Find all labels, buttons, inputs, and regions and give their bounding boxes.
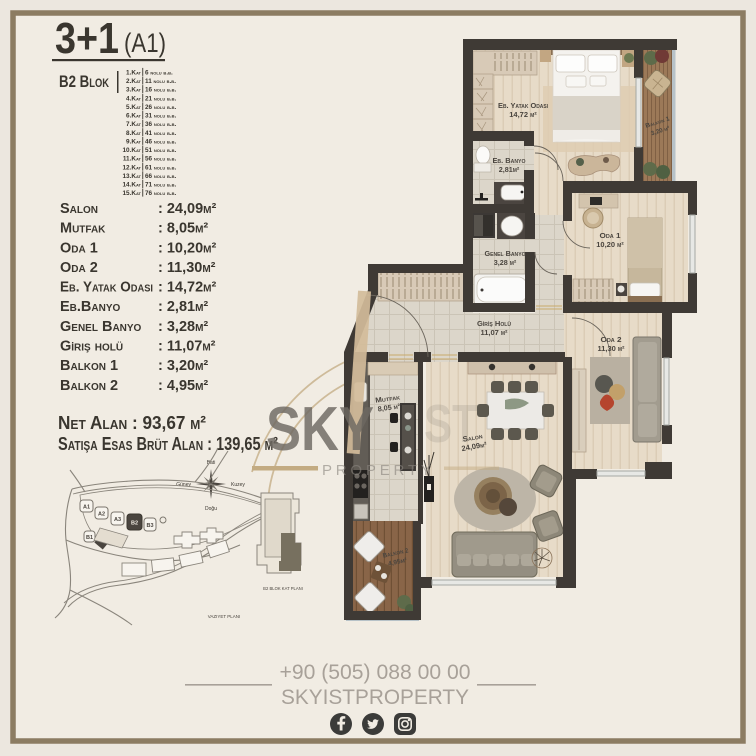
svg-text:B1: B1 bbox=[86, 535, 93, 541]
svg-text:41 nolu b.b.: 41 nolu b.b. bbox=[145, 130, 177, 137]
svg-text:B3: B3 bbox=[146, 523, 153, 529]
svg-text:Kuzey: Kuzey bbox=[231, 482, 245, 488]
svg-text:66 nolu b.b.: 66 nolu b.b. bbox=[145, 173, 177, 180]
svg-text:VAZIYET PLANI: VAZIYET PLANI bbox=[208, 614, 241, 619]
svg-text:B2: B2 bbox=[131, 521, 138, 527]
svg-text:10,20 m²: 10,20 m² bbox=[596, 240, 624, 249]
svg-text:Satişa Esas Brüt Alan : 139,6: Satişa Esas Brüt Alan : 139,65 m² bbox=[58, 433, 278, 454]
svg-text:: 3,20m²: : 3,20m² bbox=[158, 358, 208, 374]
svg-text:Genel Banyo: Genel Banyo bbox=[485, 249, 526, 258]
svg-text:3,28 m²: 3,28 m² bbox=[494, 258, 517, 267]
svg-text:46 nolu b.b.: 46 nolu b.b. bbox=[145, 139, 177, 146]
svg-text:2,81m²: 2,81m² bbox=[499, 165, 520, 174]
svg-text:Balkon 1: Balkon 1 bbox=[60, 358, 118, 374]
svg-text:31 nolu b.b.: 31 nolu b.b. bbox=[145, 113, 177, 120]
svg-text:Doğu: Doğu bbox=[205, 506, 217, 512]
svg-text:B2 Blok: B2 Blok bbox=[59, 72, 109, 91]
svg-text:Oda 1: Oda 1 bbox=[600, 231, 621, 240]
svg-text:Gi̇ri̇ş Holü: Gi̇ri̇ş Holü bbox=[477, 319, 511, 328]
svg-text:A3: A3 bbox=[114, 517, 121, 523]
svg-text:14.Kat: 14.Kat bbox=[122, 182, 141, 189]
svg-text:11 nolu b.b.: 11 nolu b.b. bbox=[145, 78, 176, 85]
svg-text:6.Kat: 6.Kat bbox=[126, 113, 142, 120]
svg-text:12.Kat: 12.Kat bbox=[122, 164, 141, 171]
svg-text:Eb.Banyo: Eb.Banyo bbox=[60, 299, 121, 315]
svg-text:15.Kat: 15.Kat bbox=[122, 190, 141, 197]
svg-text:: 8,05m²: : 8,05m² bbox=[158, 221, 208, 237]
svg-text:Oda 2: Oda 2 bbox=[601, 335, 622, 344]
svg-text:Gi̇riş holü: Gi̇riş holü bbox=[60, 339, 123, 355]
svg-text:16 nolu b.b.: 16 nolu b.b. bbox=[145, 87, 177, 94]
svg-text:36 nolu b.b.: 36 nolu b.b. bbox=[145, 121, 177, 128]
svg-text:26 nolu b.b.: 26 nolu b.b. bbox=[145, 104, 177, 111]
svg-text:: 14,72m²: : 14,72m² bbox=[158, 280, 216, 296]
svg-text:61 nolu b.b.: 61 nolu b.b. bbox=[145, 164, 177, 171]
svg-text:6 nolu b.b.: 6 nolu b.b. bbox=[145, 70, 173, 77]
svg-text:: 11,07m²: : 11,07m² bbox=[158, 339, 216, 355]
svg-text:Genel Banyo: Genel Banyo bbox=[60, 319, 142, 335]
svg-text:9.Kat: 9.Kat bbox=[126, 139, 142, 146]
svg-text:Balkon 2: Balkon 2 bbox=[60, 378, 118, 394]
svg-text:B2 BLOK KAT PLANI: B2 BLOK KAT PLANI bbox=[263, 586, 303, 591]
svg-text:76 nolu b.b.: 76 nolu b.b. bbox=[145, 190, 177, 197]
svg-text:14,72 m²: 14,72 m² bbox=[509, 110, 537, 119]
svg-text:11,30 m²: 11,30 m² bbox=[597, 344, 625, 353]
svg-text:Eb. Yatak Odasi: Eb. Yatak Odasi bbox=[60, 280, 153, 296]
svg-text:: 2,81m²: : 2,81m² bbox=[158, 299, 208, 315]
svg-text:51 nolu b.b.: 51 nolu b.b. bbox=[145, 147, 177, 154]
svg-text:21 nolu b.b.: 21 nolu b.b. bbox=[145, 95, 177, 102]
svg-text:ST: ST bbox=[424, 394, 478, 454]
svg-text:11.Kat: 11.Kat bbox=[123, 156, 142, 163]
svg-text:11,07 m²: 11,07 m² bbox=[480, 328, 508, 337]
svg-text:Eb. Banyo: Eb. Banyo bbox=[493, 156, 526, 165]
svg-text:3.Kat: 3.Kat bbox=[126, 87, 142, 94]
svg-text:SKYISTPROPERTY: SKYISTPROPERTY bbox=[281, 685, 469, 709]
svg-text:+90 (505) 088 00 00: +90 (505) 088 00 00 bbox=[280, 661, 471, 684]
svg-text:: 3,28m²: : 3,28m² bbox=[158, 319, 208, 335]
svg-text:4.Kat: 4.Kat bbox=[126, 95, 142, 102]
svg-text:Eb. Yatak Odasi: Eb. Yatak Odasi bbox=[498, 101, 549, 110]
svg-text:8.Kat: 8.Kat bbox=[126, 130, 142, 137]
svg-text:Oda 2: Oda 2 bbox=[60, 260, 98, 276]
svg-text:1.Kat: 1.Kat bbox=[126, 70, 142, 77]
svg-text:: 11,30m²: : 11,30m² bbox=[158, 260, 216, 276]
svg-text:A2: A2 bbox=[98, 512, 105, 518]
svg-text:: 4,95m²: : 4,95m² bbox=[158, 378, 208, 394]
svg-text:Mutfak: Mutfak bbox=[60, 221, 106, 237]
svg-text:56 nolu b.b.: 56 nolu b.b. bbox=[145, 156, 177, 163]
svg-text:Güney: Güney bbox=[176, 482, 191, 488]
svg-text:71 nolu b.b.: 71 nolu b.b. bbox=[145, 182, 177, 189]
svg-text:: 24,09m²: : 24,09m² bbox=[158, 201, 216, 217]
svg-text:5.Kat: 5.Kat bbox=[126, 104, 142, 111]
svg-text:: 10,20m²: : 10,20m² bbox=[158, 240, 216, 256]
svg-text:PROPERTY: PROPERTY bbox=[322, 462, 435, 479]
svg-text:A1: A1 bbox=[83, 505, 90, 511]
svg-text:(A1): (A1) bbox=[124, 28, 166, 58]
svg-text:2.Kat: 2.Kat bbox=[126, 78, 142, 85]
svg-text:10.Kat: 10.Kat bbox=[122, 147, 141, 154]
svg-text:SKY: SKY bbox=[266, 395, 374, 464]
svg-text:Net Alan : 93,67 m²: Net Alan : 93,67 m² bbox=[58, 412, 206, 433]
svg-text:13.Kat: 13.Kat bbox=[122, 173, 141, 180]
svg-text:Salon: Salon bbox=[60, 201, 98, 217]
svg-text:7.Kat: 7.Kat bbox=[126, 121, 142, 128]
svg-text:Oda 1: Oda 1 bbox=[60, 240, 98, 256]
svg-text:3+1: 3+1 bbox=[55, 14, 119, 63]
